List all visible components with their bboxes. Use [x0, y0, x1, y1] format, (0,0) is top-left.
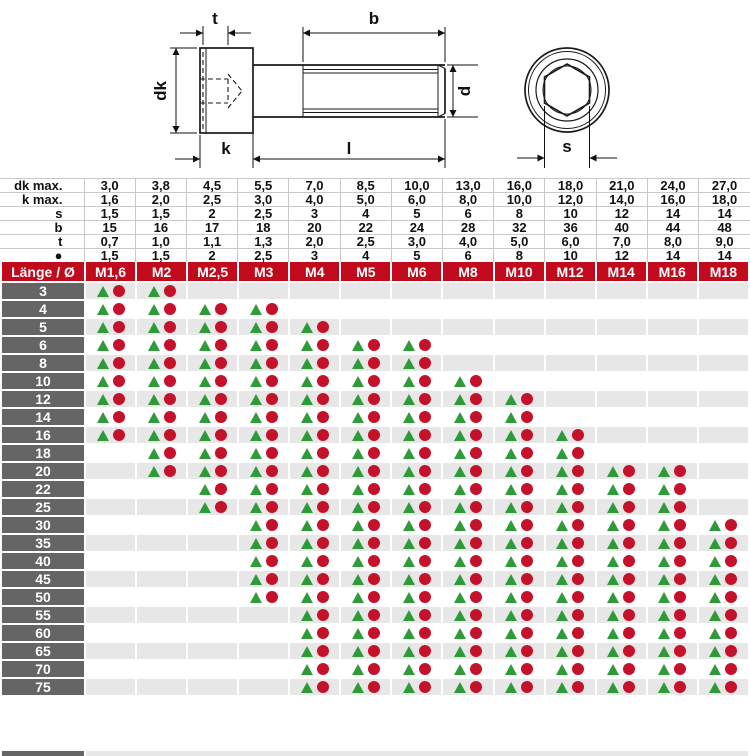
availability-markers [341, 553, 390, 569]
availability-dot-icon [164, 465, 176, 477]
availability-cell [495, 409, 544, 425]
availability-dot-icon [470, 573, 482, 585]
availability-triangle-icon [250, 304, 262, 315]
dim-label-dk: dk [151, 81, 170, 101]
availability-markers [239, 589, 288, 605]
availability-triangle-icon [148, 394, 160, 405]
availability-cell [239, 445, 288, 461]
availability-triangle-icon [454, 628, 466, 639]
availability-cell [290, 679, 339, 695]
availability-markers [648, 661, 697, 677]
availability-cell [443, 607, 492, 623]
availability-cell [137, 517, 186, 533]
availability-triangle-icon [454, 592, 466, 603]
availability-cell [699, 643, 748, 659]
availability-dot-icon [725, 555, 737, 567]
availability-cell [495, 463, 544, 479]
availability-markers [546, 661, 595, 677]
availability-cell [648, 499, 697, 515]
availability-triangle-icon [352, 502, 364, 513]
availability-markers [699, 571, 748, 587]
availability-markers [495, 517, 544, 533]
availability-triangle-icon [352, 358, 364, 369]
availability-cell [597, 499, 646, 515]
availability-cell [341, 517, 390, 533]
availability-dot-icon [113, 411, 125, 423]
spec-value: 4,0 [289, 193, 340, 207]
availability-dot-icon [317, 447, 329, 459]
availability-markers [392, 643, 441, 659]
availability-cell [137, 373, 186, 389]
availability-cell [648, 481, 697, 497]
availability-dot-icon [674, 663, 686, 675]
availability-dot-icon [419, 465, 431, 477]
availability-triangle-icon [607, 592, 619, 603]
availability-dot-icon [317, 465, 329, 477]
availability-cell [597, 571, 646, 587]
availability-dot-icon [419, 483, 431, 495]
availability-cell [239, 517, 288, 533]
availability-cell [443, 373, 492, 389]
availability-cell [86, 571, 135, 587]
availability-markers [648, 625, 697, 641]
availability-markers [495, 481, 544, 497]
availability-cell [546, 661, 595, 677]
availability-dot-icon [623, 555, 635, 567]
availability-triangle-icon [301, 646, 313, 657]
availability-cell [341, 337, 390, 353]
availability-markers [137, 391, 186, 407]
availability-triangle-icon [658, 556, 670, 567]
availability-markers [188, 481, 237, 497]
availability-cell [392, 427, 441, 443]
availability-cell [239, 589, 288, 605]
spec-value: 44 [647, 221, 698, 235]
availability-cell [239, 679, 288, 695]
availability-triangle-icon [454, 556, 466, 567]
spec-value: 8,0 [443, 193, 494, 207]
dimensions-table: dk max.3,03,84,55,57,08,510,013,016,018,… [0, 178, 750, 262]
availability-cell [392, 643, 441, 659]
availability-markers [392, 445, 441, 461]
availability-markers [597, 481, 646, 497]
availability-cell [648, 391, 697, 407]
length-row-label: 30 [2, 517, 84, 533]
spec-value: 1,0 [135, 235, 186, 249]
availability-dot-icon [470, 663, 482, 675]
spec-value: 10 [545, 207, 596, 221]
availability-cell [495, 535, 544, 551]
length-row: 18 [2, 445, 748, 461]
availability-cell [239, 625, 288, 641]
availability-markers [290, 427, 339, 443]
spec-value: 5,0 [340, 193, 391, 207]
availability-cell [86, 463, 135, 479]
availability-cell [239, 355, 288, 371]
spec-value: 8,5 [340, 179, 391, 193]
availability-cell [239, 571, 288, 587]
availability-dot-icon [164, 321, 176, 333]
availability-dot-icon [317, 573, 329, 585]
dim-label-t: t [212, 9, 218, 28]
availability-triangle-icon [301, 610, 313, 621]
availability-dot-icon [215, 357, 227, 369]
availability-dot-icon [215, 375, 227, 387]
availability-markers [341, 499, 390, 515]
availability-triangle-icon [658, 592, 670, 603]
availability-triangle-icon [454, 610, 466, 621]
availability-cell [546, 607, 595, 623]
availability-cell [495, 679, 544, 695]
availability-dot-icon [674, 681, 686, 693]
availability-dot-icon [215, 393, 227, 405]
length-row-label: 60 [2, 625, 84, 641]
availability-dot-icon [419, 681, 431, 693]
availability-dot-icon [623, 609, 635, 621]
availability-triangle-icon [97, 322, 109, 333]
availability-dot-icon [113, 321, 125, 333]
availability-cell [392, 283, 441, 299]
availability-dot-icon [266, 591, 278, 603]
availability-cell [290, 625, 339, 641]
availability-dot-icon [317, 645, 329, 657]
availability-dot-icon [572, 555, 584, 567]
availability-dot-icon [317, 663, 329, 675]
availability-markers [597, 499, 646, 515]
availability-markers [392, 409, 441, 425]
availability-cell [648, 643, 697, 659]
availability-dot-icon [368, 645, 380, 657]
availability-cell [699, 445, 748, 461]
availability-cell [648, 553, 697, 569]
availability-markers [341, 355, 390, 371]
availability-dot-icon [266, 393, 278, 405]
availability-cell [699, 553, 748, 569]
availability-cell [239, 301, 288, 317]
availability-triangle-icon [556, 466, 568, 477]
availability-markers [546, 445, 595, 461]
availability-cell [392, 409, 441, 425]
availability-cell [597, 391, 646, 407]
availability-markers [443, 427, 492, 443]
availability-dot-icon [215, 483, 227, 495]
availability-cell [341, 355, 390, 371]
availability-dot-icon [623, 645, 635, 657]
availability-dot-icon [266, 501, 278, 513]
availability-markers [239, 373, 288, 389]
length-row: 8 [2, 355, 748, 371]
availability-dot-icon [623, 573, 635, 585]
availability-cell [239, 661, 288, 677]
availability-cell [290, 607, 339, 623]
availability-triangle-icon [658, 646, 670, 657]
availability-cell [290, 445, 339, 461]
availability-cell [648, 373, 697, 389]
availability-dot-icon [470, 591, 482, 603]
availability-cell [648, 283, 697, 299]
availability-cell [597, 319, 646, 335]
availability-dot-icon [419, 609, 431, 621]
availability-cell [443, 589, 492, 605]
availability-dot-icon [317, 591, 329, 603]
availability-cell [188, 643, 237, 659]
availability-markers [546, 625, 595, 641]
availability-triangle-icon [148, 448, 160, 459]
availability-dot-icon [113, 393, 125, 405]
availability-cell [239, 391, 288, 407]
availability-cell [188, 571, 237, 587]
availability-markers [137, 319, 186, 335]
availability-markers [699, 679, 748, 695]
availability-cell [546, 409, 595, 425]
availability-cell [699, 517, 748, 533]
availability-markers [443, 679, 492, 695]
availability-markers [699, 661, 748, 677]
length-row: 30 [2, 517, 748, 533]
availability-triangle-icon [505, 592, 517, 603]
availability-cell [597, 661, 646, 677]
availability-triangle-icon [556, 538, 568, 549]
availability-markers [648, 589, 697, 605]
spec-value: 6 [443, 207, 494, 221]
availability-dot-icon [470, 429, 482, 441]
availability-triangle-icon [301, 430, 313, 441]
availability-cell [86, 427, 135, 443]
availability-triangle-icon [250, 340, 262, 351]
spec-value: 8 [494, 207, 545, 221]
availability-markers [188, 427, 237, 443]
availability-markers [188, 337, 237, 353]
availability-cell [648, 445, 697, 461]
availability-markers [443, 571, 492, 587]
availability-markers [392, 517, 441, 533]
spec-value: 7,0 [596, 235, 647, 249]
availability-triangle-icon [250, 466, 262, 477]
availability-cell [188, 481, 237, 497]
availability-cell [341, 463, 390, 479]
length-row-label: 65 [2, 643, 84, 659]
availability-triangle-icon [352, 448, 364, 459]
availability-markers [648, 643, 697, 659]
availability-cell [597, 643, 646, 659]
availability-markers [597, 679, 646, 695]
availability-markers [290, 499, 339, 515]
availability-dot-icon [368, 447, 380, 459]
availability-markers [392, 499, 441, 515]
availability-cell [188, 463, 237, 479]
thread-lines [303, 65, 438, 117]
availability-cell [188, 553, 237, 569]
availability-markers [290, 409, 339, 425]
availability-cell [392, 445, 441, 461]
spec-value: 4,5 [186, 179, 237, 193]
availability-cell [495, 643, 544, 659]
availability-cell [443, 517, 492, 533]
availability-triangle-icon [454, 664, 466, 675]
availability-dot-icon [368, 411, 380, 423]
availability-dot-icon [572, 591, 584, 603]
availability-cell [597, 535, 646, 551]
availability-triangle-icon [709, 520, 721, 531]
availability-matrix: Länge / ØM1,6M2M2,5M3M4M5M6M8M10M12M14M1… [0, 260, 750, 697]
availability-markers [239, 391, 288, 407]
availability-triangle-icon [301, 466, 313, 477]
availability-cell [392, 373, 441, 389]
spec-value: 24,0 [647, 179, 698, 193]
availability-dot-icon [572, 465, 584, 477]
availability-triangle-icon [352, 466, 364, 477]
availability-triangle-icon [403, 358, 415, 369]
availability-cell [546, 481, 595, 497]
availability-triangle-icon [454, 448, 466, 459]
availability-markers [392, 355, 441, 371]
availability-triangle-icon [454, 394, 466, 405]
availability-dot-icon [674, 591, 686, 603]
availability-cell [392, 589, 441, 605]
availability-cell [699, 283, 748, 299]
availability-cell [290, 589, 339, 605]
spec-value: 18 [238, 221, 289, 235]
availability-cell [699, 463, 748, 479]
availability-markers [188, 499, 237, 515]
availability-cell [86, 301, 135, 317]
availability-cell [392, 679, 441, 695]
availability-dot-icon [317, 537, 329, 549]
availability-cell [290, 571, 339, 587]
availability-dot-icon [164, 447, 176, 459]
availability-markers [443, 589, 492, 605]
availability-cell [648, 625, 697, 641]
availability-cell [546, 319, 595, 335]
availability-dot-icon [725, 627, 737, 639]
length-row: 25 [2, 499, 748, 515]
availability-dot-icon [419, 537, 431, 549]
availability-dot-icon [521, 447, 533, 459]
availability-cell [392, 517, 441, 533]
availability-triangle-icon [709, 556, 721, 567]
availability-cell [239, 337, 288, 353]
availability-cell [137, 679, 186, 695]
spec-value: 14 [699, 207, 750, 221]
spec-row: s1,51,522,53456810121414 [0, 207, 750, 221]
availability-triangle-icon [556, 628, 568, 639]
availability-dot-icon [623, 483, 635, 495]
availability-dot-icon [572, 645, 584, 657]
spec-value: 16,0 [494, 179, 545, 193]
spec-value: 21,0 [596, 179, 647, 193]
availability-dot-icon [725, 681, 737, 693]
length-row-label: 10 [2, 373, 84, 389]
matrix-header-row: Länge / ØM1,6M2M2,5M3M4M5M6M8M10M12M14M1… [2, 262, 748, 281]
availability-triangle-icon [454, 520, 466, 531]
availability-cell [495, 589, 544, 605]
spec-value: 3 [289, 207, 340, 221]
availability-dot-icon [368, 627, 380, 639]
spec-row-label: k max. [0, 193, 84, 207]
availability-dot-icon [623, 663, 635, 675]
availability-cell [597, 625, 646, 641]
availability-markers [443, 643, 492, 659]
availability-cell [137, 661, 186, 677]
availability-triangle-icon [250, 322, 262, 333]
spec-value: 16 [135, 221, 186, 235]
availability-markers [290, 319, 339, 335]
availability-cell [648, 337, 697, 353]
availability-cell [495, 355, 544, 371]
availability-triangle-icon [148, 340, 160, 351]
availability-markers [341, 643, 390, 659]
availability-triangle-icon [250, 358, 262, 369]
availability-cell [290, 463, 339, 479]
availability-triangle-icon [301, 448, 313, 459]
availability-dot-icon [419, 645, 431, 657]
availability-dot-icon [266, 375, 278, 387]
spec-value: 5,0 [494, 235, 545, 249]
availability-cell [495, 445, 544, 461]
availability-dot-icon [317, 321, 329, 333]
availability-markers [392, 625, 441, 641]
availability-cell [699, 661, 748, 677]
dim-label-d: d [455, 86, 474, 96]
spec-row-label: s [0, 207, 84, 221]
availability-dot-icon [470, 681, 482, 693]
availability-triangle-icon [97, 286, 109, 297]
availability-dot-icon [266, 429, 278, 441]
availability-triangle-icon [250, 394, 262, 405]
availability-triangle-icon [301, 394, 313, 405]
availability-triangle-icon [97, 358, 109, 369]
availability-triangle-icon [97, 376, 109, 387]
availability-dot-icon [113, 285, 125, 297]
availability-triangle-icon [403, 466, 415, 477]
availability-cell [546, 625, 595, 641]
availability-triangle-icon [505, 556, 517, 567]
availability-triangle-icon [301, 502, 313, 513]
availability-markers [546, 643, 595, 659]
size-column-header: M10 [495, 262, 544, 281]
availability-cell [597, 283, 646, 299]
availability-markers [392, 589, 441, 605]
availability-markers [546, 463, 595, 479]
dimension-labels: t b dk d k l s [151, 9, 572, 158]
availability-cell [137, 589, 186, 605]
availability-cell [597, 445, 646, 461]
spec-value: 10,0 [391, 179, 442, 193]
availability-dot-icon [521, 393, 533, 405]
availability-triangle-icon [250, 574, 262, 585]
availability-markers [86, 337, 135, 353]
availability-markers [86, 301, 135, 317]
availability-triangle-icon [556, 484, 568, 495]
availability-triangle-icon [607, 466, 619, 477]
length-row-label: 25 [2, 499, 84, 515]
availability-triangle-icon [505, 538, 517, 549]
spec-value: 18,0 [699, 193, 750, 207]
availability-dot-icon [521, 627, 533, 639]
availability-triangle-icon [607, 682, 619, 693]
spec-row: b15161718202224283236404448 [0, 221, 750, 235]
availability-cell [86, 553, 135, 569]
availability-cell [546, 589, 595, 605]
availability-cell [86, 355, 135, 371]
availability-markers [546, 481, 595, 497]
availability-cell [290, 553, 339, 569]
availability-triangle-icon [454, 646, 466, 657]
availability-markers [495, 553, 544, 569]
availability-triangle-icon [607, 520, 619, 531]
availability-dot-icon [215, 501, 227, 513]
dim-label-b: b [369, 9, 379, 28]
